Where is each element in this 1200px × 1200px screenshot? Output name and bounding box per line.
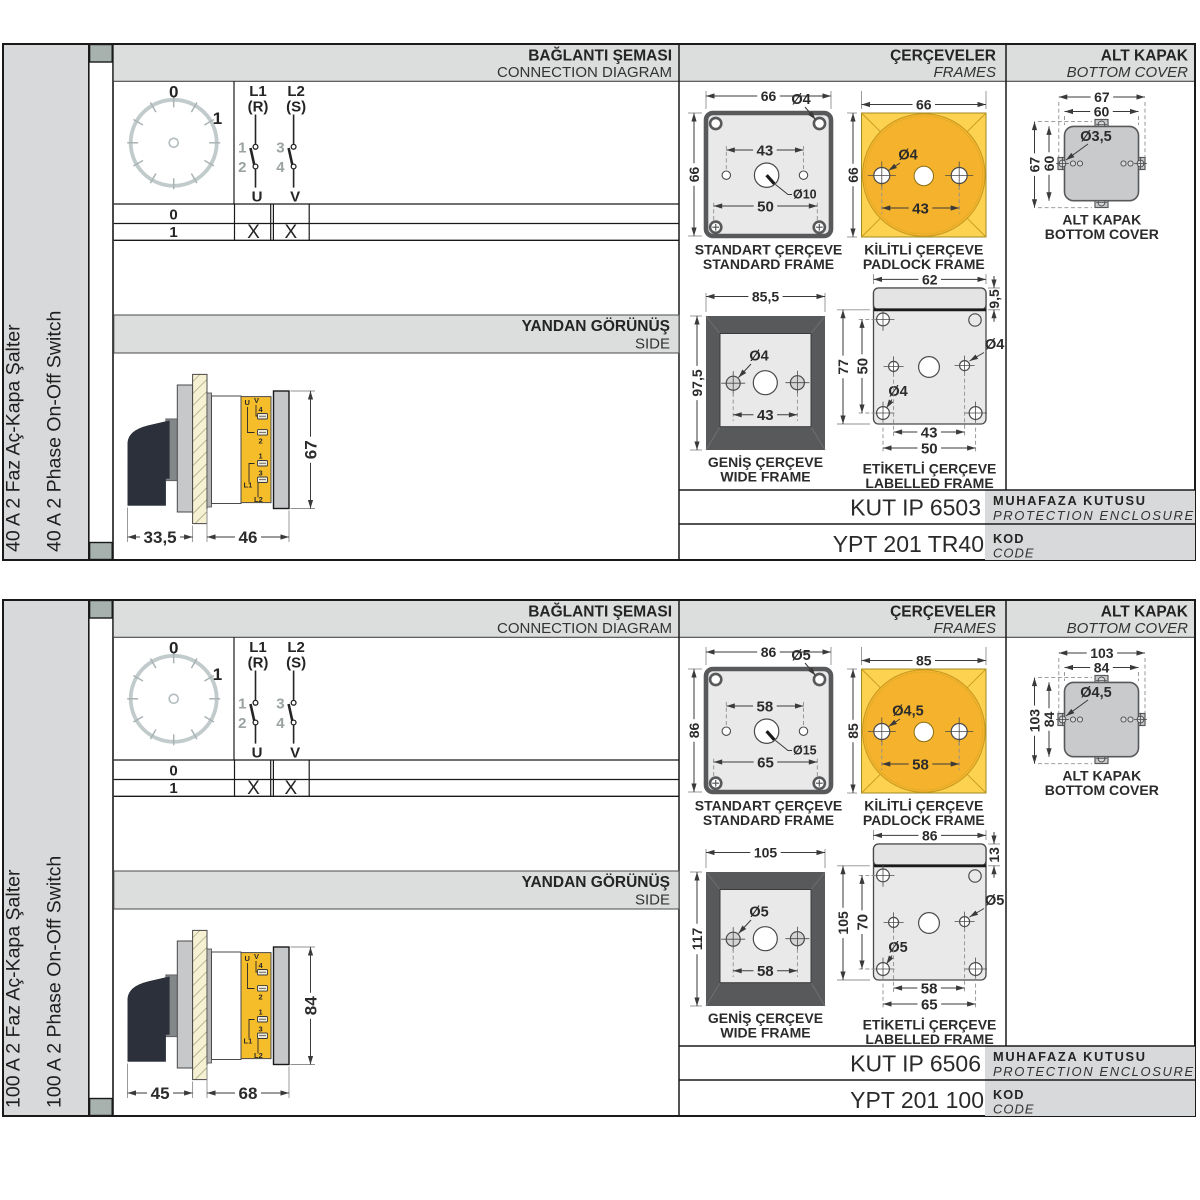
svg-text:Ø4: Ø4: [888, 384, 907, 400]
svg-text:L1: L1: [244, 481, 253, 490]
svg-text:46: 46: [239, 528, 258, 547]
svg-text:0: 0: [169, 83, 178, 102]
svg-text:MUHAFAZA KUTUSU: MUHAFAZA KUTUSU: [993, 1049, 1147, 1064]
svg-text:(R): (R): [248, 655, 269, 672]
svg-text:117: 117: [689, 927, 705, 950]
svg-text:105: 105: [754, 845, 778, 861]
svg-text:85: 85: [845, 723, 861, 739]
svg-text:YPT 201 100: YPT 201 100: [850, 1087, 984, 1113]
svg-text:1: 1: [169, 224, 177, 241]
svg-text:KOD: KOD: [993, 531, 1024, 546]
svg-text:PROTECTION ENCLOSURE: PROTECTION ENCLOSURE: [993, 1064, 1195, 1079]
svg-text:84: 84: [1094, 660, 1110, 676]
svg-text:43: 43: [757, 142, 774, 159]
svg-text:65: 65: [757, 754, 774, 771]
svg-text:60: 60: [1094, 104, 1110, 120]
svg-text:ÇERÇEVELER: ÇERÇEVELER: [890, 604, 996, 621]
svg-text:33,5: 33,5: [144, 528, 177, 547]
svg-text:1: 1: [213, 665, 222, 684]
svg-text:4: 4: [276, 715, 285, 732]
svg-text:105: 105: [835, 911, 851, 935]
svg-text:67: 67: [302, 440, 321, 459]
svg-text:66: 66: [761, 88, 777, 104]
svg-text:V: V: [290, 189, 300, 206]
svg-text:43: 43: [757, 407, 774, 424]
svg-text:V: V: [254, 952, 259, 961]
svg-text:58: 58: [757, 698, 774, 715]
svg-text:77: 77: [835, 359, 851, 375]
svg-text:58: 58: [757, 963, 774, 980]
svg-text:62: 62: [922, 271, 938, 287]
svg-text:1: 1: [259, 1008, 263, 1017]
svg-text:50: 50: [854, 358, 871, 375]
svg-text:YANDAN GÖRÜNÜŞ: YANDAN GÖRÜNÜŞ: [522, 874, 670, 891]
svg-text:65: 65: [921, 996, 938, 1013]
svg-text:ÇERÇEVELER: ÇERÇEVELER: [890, 48, 996, 65]
svg-text:Ø15: Ø15: [793, 744, 817, 758]
svg-text:84: 84: [302, 996, 321, 1015]
svg-text:50: 50: [757, 198, 774, 215]
svg-text:L1: L1: [249, 639, 267, 656]
svg-text:L2: L2: [287, 83, 305, 100]
svg-text:43: 43: [912, 200, 929, 217]
svg-text:1: 1: [238, 140, 246, 157]
svg-text:BOTTOM COVER: BOTTOM COVER: [1045, 226, 1159, 242]
svg-text:FRAMES: FRAMES: [933, 64, 996, 81]
svg-text:X: X: [247, 778, 260, 799]
svg-text:100 A 2 Phase On-Off Switch: 100 A 2 Phase On-Off Switch: [44, 856, 66, 1108]
svg-text:Ø3,5: Ø3,5: [1080, 129, 1111, 145]
svg-text:Ø5: Ø5: [791, 648, 810, 664]
svg-text:Ø4: Ø4: [791, 92, 810, 108]
svg-text:(R): (R): [248, 99, 269, 116]
svg-text:2: 2: [238, 715, 246, 732]
svg-text:66: 66: [916, 97, 932, 113]
svg-text:X: X: [284, 222, 297, 243]
svg-text:STANDARD FRAME: STANDARD FRAME: [703, 812, 834, 828]
svg-text:BOTTOM COVER: BOTTOM COVER: [1067, 620, 1189, 637]
svg-text:4: 4: [276, 159, 285, 176]
svg-text:2: 2: [238, 159, 246, 176]
svg-text:BOTTOM COVER: BOTTOM COVER: [1067, 64, 1189, 81]
svg-text:YANDAN GÖRÜNÜŞ: YANDAN GÖRÜNÜŞ: [522, 318, 670, 335]
svg-text:(S): (S): [286, 655, 306, 672]
svg-text:Ø4: Ø4: [898, 148, 917, 164]
svg-text:58: 58: [912, 756, 929, 773]
svg-text:U: U: [245, 398, 250, 407]
svg-text:Ø10: Ø10: [793, 188, 817, 202]
svg-text:Ø5: Ø5: [888, 940, 907, 956]
svg-text:3: 3: [259, 469, 263, 478]
svg-text:KUT IP 6506: KUT IP 6506: [850, 1051, 981, 1077]
svg-text:1: 1: [259, 452, 263, 461]
svg-text:CODE: CODE: [993, 546, 1035, 561]
svg-text:Ø4,5: Ø4,5: [892, 704, 923, 720]
svg-text:86: 86: [686, 723, 702, 739]
svg-text:WIDE FRAME: WIDE FRAME: [720, 1025, 810, 1041]
svg-text:97,5: 97,5: [689, 369, 705, 396]
svg-text:CODE: CODE: [993, 1102, 1035, 1117]
svg-text:STANDARD FRAME: STANDARD FRAME: [703, 256, 834, 272]
svg-text:0: 0: [169, 207, 177, 224]
svg-text:U: U: [245, 954, 250, 963]
svg-text:43: 43: [921, 424, 938, 441]
svg-text:CONNECTION DIAGRAM: CONNECTION DIAGRAM: [497, 64, 672, 81]
svg-text:U: U: [252, 745, 263, 762]
svg-text:70: 70: [854, 914, 871, 931]
svg-text:SIDE: SIDE: [635, 892, 670, 909]
svg-text:LABELLED FRAME: LABELLED FRAME: [865, 1031, 993, 1047]
svg-text:100 A 2 Faz Aç-Kapa Şalter: 100 A 2 Faz Aç-Kapa Şalter: [3, 869, 25, 1108]
svg-text:85: 85: [916, 653, 932, 669]
svg-text:40 A 2 Phase On-Off Switch: 40 A 2 Phase On-Off Switch: [44, 311, 66, 552]
svg-text:40 A 2 Faz Aç-Kapa Şalter: 40 A 2 Faz Aç-Kapa Şalter: [3, 324, 25, 552]
svg-text:Ø4: Ø4: [749, 349, 768, 365]
svg-text:KOD: KOD: [993, 1087, 1024, 1102]
svg-text:L1: L1: [249, 83, 267, 100]
svg-text:0: 0: [169, 639, 178, 658]
svg-text:ALT KAPAK: ALT KAPAK: [1101, 604, 1189, 621]
svg-text:Ø5: Ø5: [985, 893, 1004, 909]
svg-text:YPT 201 TR40: YPT 201 TR40: [833, 531, 984, 557]
svg-text:MUHAFAZA KUTUSU: MUHAFAZA KUTUSU: [993, 493, 1147, 508]
svg-text:PADLOCK FRAME: PADLOCK FRAME: [863, 812, 985, 828]
svg-text:L1: L1: [244, 1037, 253, 1046]
svg-text:Ø5: Ø5: [749, 905, 768, 921]
svg-text:WIDE FRAME: WIDE FRAME: [720, 469, 810, 485]
svg-text:X: X: [247, 222, 260, 243]
svg-text:BAĞLANTI ŞEMASI: BAĞLANTI ŞEMASI: [528, 47, 672, 65]
svg-text:U: U: [252, 189, 263, 206]
svg-text:86: 86: [922, 827, 938, 843]
svg-text:2: 2: [259, 993, 263, 1002]
svg-text:L2: L2: [287, 639, 305, 656]
svg-text:LABELLED FRAME: LABELLED FRAME: [865, 475, 993, 491]
svg-text:68: 68: [239, 1084, 258, 1103]
svg-text:BOTTOM COVER: BOTTOM COVER: [1045, 782, 1159, 798]
svg-text:85,5: 85,5: [752, 289, 779, 305]
svg-text:KUT IP 6503: KUT IP 6503: [850, 495, 981, 521]
svg-text:1: 1: [169, 780, 177, 797]
svg-text:9,5: 9,5: [986, 289, 1002, 309]
svg-text:Ø4: Ø4: [985, 337, 1004, 353]
svg-text:1: 1: [213, 109, 222, 128]
svg-text:PADLOCK FRAME: PADLOCK FRAME: [863, 256, 985, 272]
svg-text:50: 50: [921, 440, 938, 457]
svg-text:3: 3: [276, 140, 284, 157]
svg-text:SIDE: SIDE: [635, 336, 670, 353]
svg-text:FRAMES: FRAMES: [933, 620, 996, 637]
svg-text:CONNECTION DIAGRAM: CONNECTION DIAGRAM: [497, 620, 672, 637]
svg-text:0: 0: [169, 763, 177, 780]
svg-text:BAĞLANTI ŞEMASI: BAĞLANTI ŞEMASI: [528, 603, 672, 621]
svg-text:Ø4,5: Ø4,5: [1080, 685, 1111, 701]
svg-text:66: 66: [686, 167, 702, 183]
svg-text:45: 45: [151, 1084, 170, 1103]
svg-text:13: 13: [986, 847, 1002, 863]
svg-text:2: 2: [259, 437, 263, 446]
svg-text:X: X: [284, 778, 297, 799]
svg-text:V: V: [254, 396, 259, 405]
svg-text:(S): (S): [286, 99, 306, 116]
svg-text:60: 60: [1041, 156, 1057, 172]
svg-text:86: 86: [761, 644, 777, 660]
svg-text:3: 3: [259, 1025, 263, 1034]
svg-text:3: 3: [276, 696, 284, 713]
svg-text:PROTECTION ENCLOSURE: PROTECTION ENCLOSURE: [993, 508, 1195, 523]
svg-text:ALT KAPAK: ALT KAPAK: [1101, 48, 1189, 65]
svg-text:V: V: [290, 745, 300, 762]
svg-text:1: 1: [238, 696, 246, 713]
svg-text:58: 58: [921, 980, 938, 997]
svg-text:84: 84: [1041, 712, 1057, 728]
svg-text:66: 66: [845, 167, 861, 183]
